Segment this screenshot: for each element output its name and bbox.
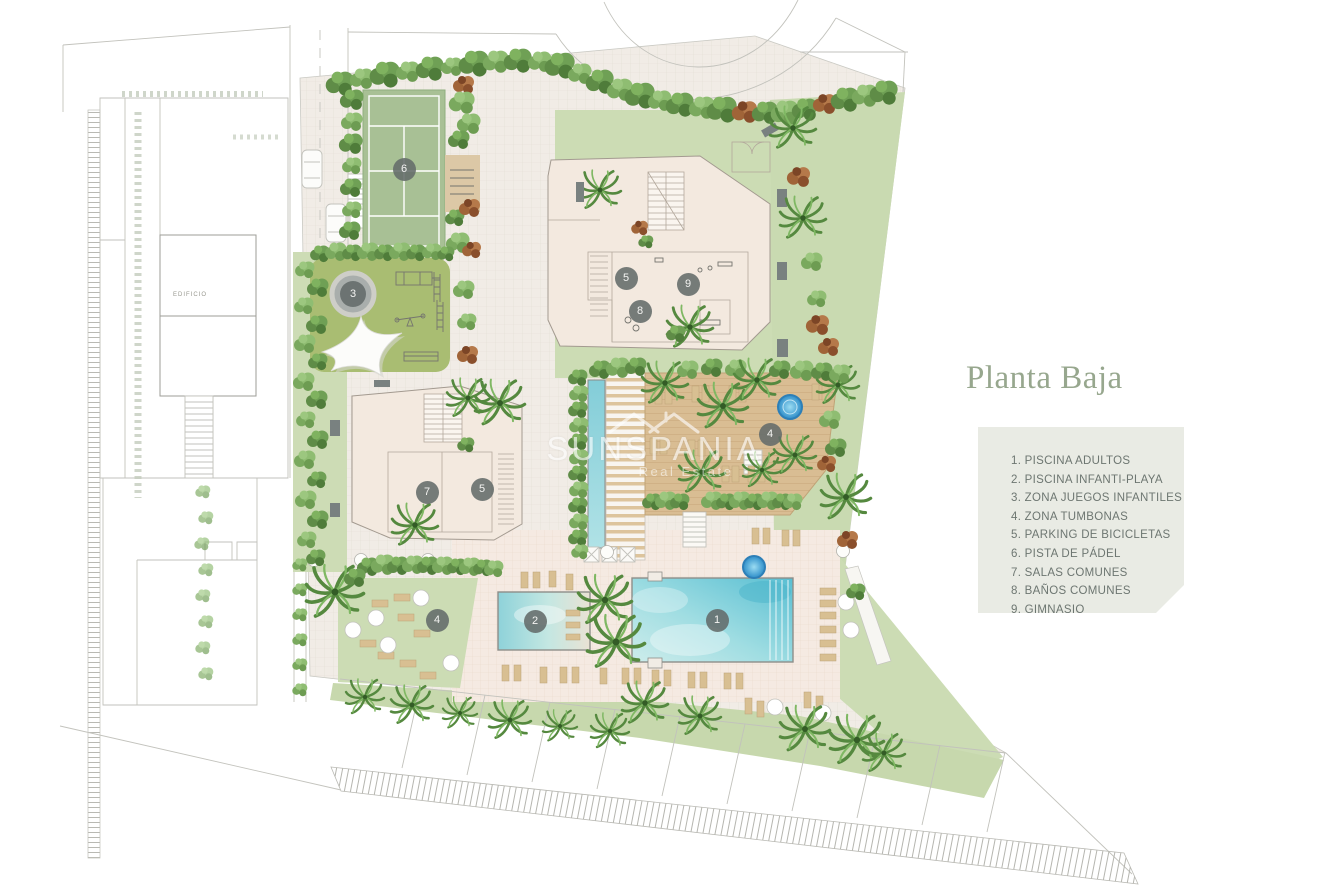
sidewalk-hatch — [331, 767, 1138, 884]
neighbor-building-label: EDIFICIO — [158, 292, 222, 298]
legend-item: 7. SALAS COMUNES — [1011, 564, 1174, 583]
badge-banos-comunes: 8 — [629, 300, 652, 323]
legend-item: 8. BAÑOS COMUNES — [1011, 582, 1174, 601]
legend-item: 5. PARKING DE BICICLETAS — [1011, 526, 1174, 545]
badge-piscina-infantil: 2 — [524, 610, 547, 633]
umbrella-icon — [443, 655, 459, 671]
legend-panel: 1. PISCINA ADULTOS 2. PISCINA INFANTI-PL… — [978, 427, 1184, 613]
legend-item: 3. ZONA JUEGOS INFANTILES — [1011, 489, 1174, 508]
plaza-stairs — [683, 512, 706, 547]
neighbor-stairs — [185, 396, 213, 478]
legend-item: 6. PISTA DE PÁDEL — [1011, 545, 1174, 564]
umbrella-icon — [380, 637, 396, 653]
umbrella-icon — [368, 610, 384, 626]
playground — [310, 258, 450, 378]
umbrella-icon — [413, 590, 429, 606]
badge-pista-de-padel: 6 — [393, 158, 416, 181]
legend-item: 2. PISCINA INFANTI-PLAYA — [1011, 471, 1174, 490]
page-title: Planta Baja — [966, 360, 1123, 397]
badge-zona-tumbonas-deck: 4 — [759, 423, 782, 446]
lap-pool — [588, 380, 605, 548]
legend-list: 1. PISCINA ADULTOS 2. PISCINA INFANTI-PL… — [978, 427, 1184, 635]
badge-zona-tumbonas-cesped: 4 — [426, 609, 449, 632]
badge-zona-juegos-infantiles: 3 — [340, 281, 366, 307]
umbrella-icon — [345, 622, 361, 638]
badge-salas-comunes: 7 — [416, 481, 439, 504]
jacuzzi-icon — [743, 556, 765, 578]
jacuzzi-icon — [778, 395, 802, 419]
lap-pool-walkway — [584, 372, 645, 562]
neighbor-plot — [88, 94, 288, 858]
badge-gimnasio: 9 — [677, 273, 700, 296]
badge-piscina-adultos: 1 — [706, 609, 729, 632]
legend-item: 1. PISCINA ADULTOS — [1011, 452, 1174, 471]
umbrella-icon — [843, 622, 859, 638]
legend-item: 4. ZONA TUMBONAS — [1011, 508, 1174, 527]
badge-parking-bicicletas-1: 5 — [471, 478, 494, 501]
plot-boundary-line — [60, 726, 341, 790]
umbrella-icon — [767, 699, 783, 715]
site-plan-page: EDIFICIO SUNSPANIA Real Estate 6 3 5 9 8… — [0, 0, 1320, 895]
badge-parking-bicicletas-2: 5 — [615, 267, 638, 290]
car-icon — [302, 150, 322, 188]
